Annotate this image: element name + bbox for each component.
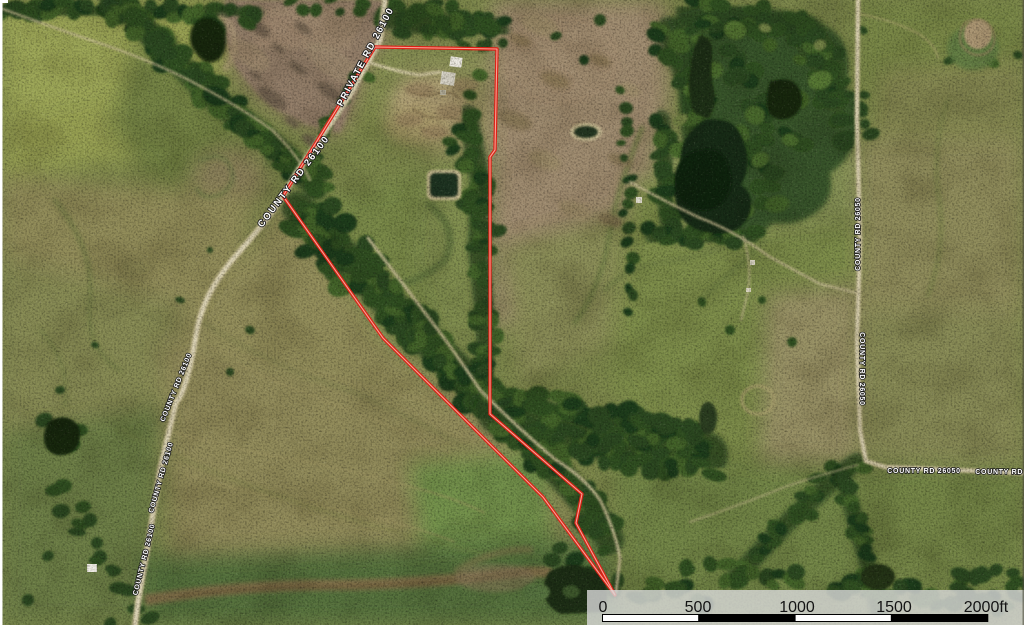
svg-text:1500: 1500 — [876, 599, 912, 616]
svg-text:500: 500 — [685, 599, 712, 616]
svg-text:COUNTY RD 26050: COUNTY RD 26050 — [975, 469, 1024, 476]
svg-text:0: 0 — [599, 599, 608, 616]
svg-text:2000ft: 2000ft — [964, 599, 1009, 616]
svg-text:1000: 1000 — [779, 599, 815, 616]
svg-text:COUNTY RD 26050: COUNTY RD 26050 — [858, 332, 865, 405]
svg-text:COUNTY RD 26050: COUNTY RD 26050 — [855, 197, 862, 270]
svg-text:COUNTY RD 26050: COUNTY RD 26050 — [887, 468, 960, 475]
